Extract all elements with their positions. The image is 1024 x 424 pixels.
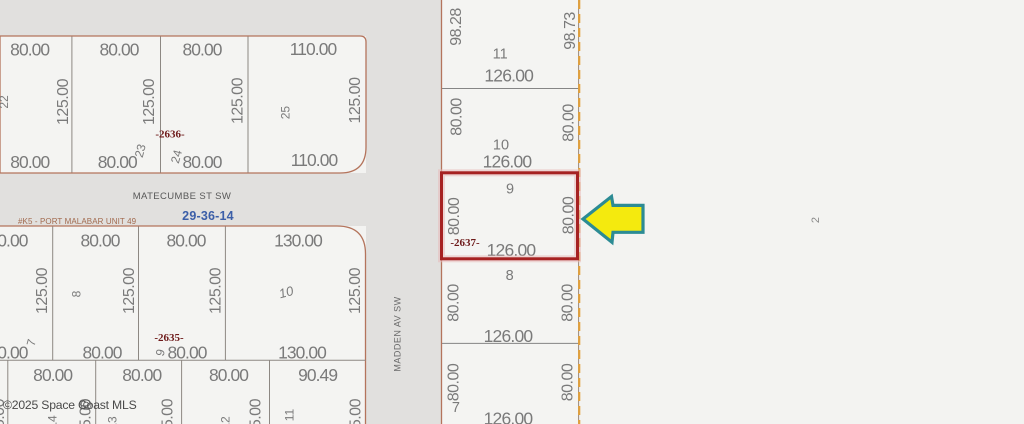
svg-text:#K5 - PORT MALABAR UNIT 49: #K5 - PORT MALABAR UNIT 49 xyxy=(18,217,137,226)
svg-text:125.00: 125.00 xyxy=(121,267,138,314)
svg-text:22: 22 xyxy=(0,95,11,109)
svg-text:12: 12 xyxy=(218,416,232,424)
svg-text:80.00: 80.00 xyxy=(10,39,49,59)
svg-text:80.00: 80.00 xyxy=(182,39,221,59)
svg-text:11: 11 xyxy=(282,408,296,421)
svg-text:125.00: 125.00 xyxy=(347,398,364,424)
svg-text:130.00: 130.00 xyxy=(278,342,326,362)
svg-text:80.00: 80.00 xyxy=(209,365,248,385)
svg-text:©: © xyxy=(80,397,91,414)
svg-text:MATECUMBE ST SW: MATECUMBE ST SW xyxy=(133,191,232,202)
svg-text:125.00: 125.00 xyxy=(229,77,246,124)
svg-text:13: 13 xyxy=(105,416,119,424)
svg-text:80.00: 80.00 xyxy=(99,39,138,59)
svg-text:©2025 Space Coast MLS: ©2025 Space Coast MLS xyxy=(3,398,137,412)
svg-text:80.00: 80.00 xyxy=(0,230,28,250)
svg-text:80.00: 80.00 xyxy=(80,230,119,250)
svg-text:2: 2 xyxy=(810,217,822,223)
svg-text:125.00: 125.00 xyxy=(159,398,176,424)
svg-text:80.00: 80.00 xyxy=(33,365,72,385)
svg-text:80.00: 80.00 xyxy=(449,98,466,136)
svg-text:9: 9 xyxy=(506,182,514,198)
svg-text:125.00: 125.00 xyxy=(207,267,224,314)
svg-text:98.28: 98.28 xyxy=(448,8,465,46)
svg-text:110.00: 110.00 xyxy=(290,39,337,59)
svg-text:80.00: 80.00 xyxy=(82,342,121,362)
svg-text:11: 11 xyxy=(493,46,508,62)
svg-text:-2637-: -2637- xyxy=(450,237,480,249)
svg-text:80.00: 80.00 xyxy=(182,152,221,172)
svg-text:126.00: 126.00 xyxy=(484,326,534,346)
svg-text:29-36-14: 29-36-14 xyxy=(182,209,234,223)
svg-text:80.00: 80.00 xyxy=(559,284,576,322)
svg-text:126.00: 126.00 xyxy=(484,66,534,86)
svg-text:80.00: 80.00 xyxy=(446,197,463,235)
svg-text:98.73: 98.73 xyxy=(562,12,579,50)
svg-text:80.00: 80.00 xyxy=(560,104,577,142)
svg-text:80.00: 80.00 xyxy=(10,152,49,172)
svg-text:125.00: 125.00 xyxy=(248,398,265,424)
svg-text:7: 7 xyxy=(452,400,460,416)
svg-text:125.00: 125.00 xyxy=(34,267,51,314)
svg-text:8: 8 xyxy=(69,290,83,297)
svg-text:126.00: 126.00 xyxy=(484,409,534,424)
svg-text:130.00: 130.00 xyxy=(274,230,322,250)
svg-text:80.00: 80.00 xyxy=(167,342,206,362)
svg-text:125.00: 125.00 xyxy=(347,267,364,314)
svg-text:110.00: 110.00 xyxy=(291,150,338,170)
svg-text:80.00: 80.00 xyxy=(445,284,462,322)
svg-text:80.00: 80.00 xyxy=(166,230,205,250)
svg-text:90.49: 90.49 xyxy=(298,365,337,385)
svg-text:-2635-: -2635- xyxy=(154,332,184,344)
svg-text:80.00: 80.00 xyxy=(559,363,576,401)
svg-text:8: 8 xyxy=(506,268,514,284)
svg-text:125.00: 125.00 xyxy=(55,78,72,125)
svg-text:125.00: 125.00 xyxy=(141,78,158,125)
svg-text:80.00: 80.00 xyxy=(122,365,161,385)
svg-text:14: 14 xyxy=(46,415,60,424)
svg-text:25: 25 xyxy=(278,106,292,120)
svg-text:MADDEN AV SW: MADDEN AV SW xyxy=(393,296,403,371)
svg-text:80.00: 80.00 xyxy=(445,363,462,401)
svg-text:80.00: 80.00 xyxy=(0,342,28,362)
svg-text:126.00: 126.00 xyxy=(483,152,533,172)
svg-text:-2636-: -2636- xyxy=(155,128,185,140)
svg-text:125.00: 125.00 xyxy=(347,77,364,124)
